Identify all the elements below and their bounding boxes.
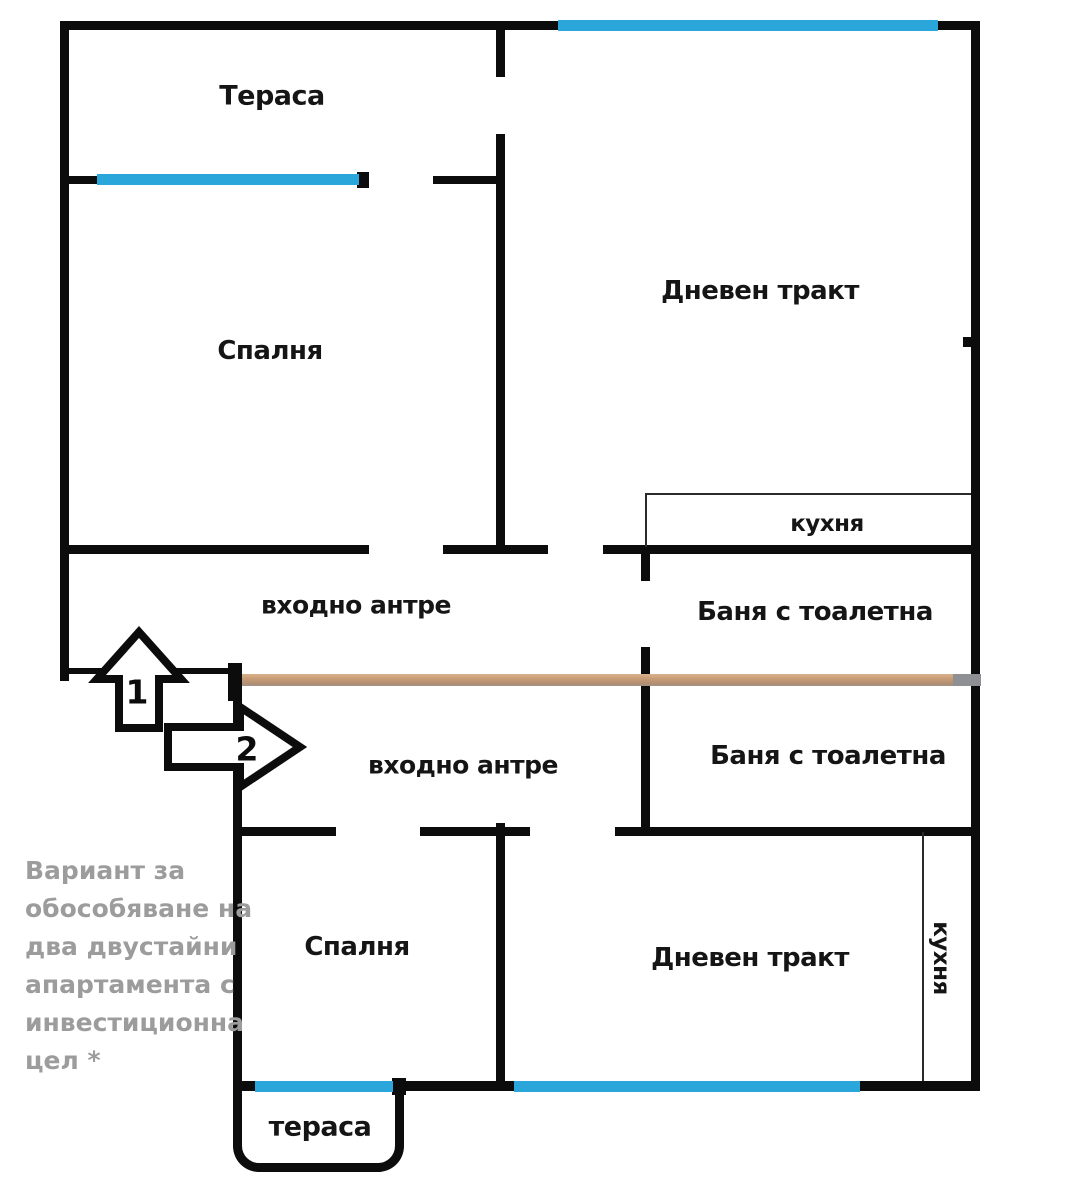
wall-bottom-right: [858, 1081, 980, 1091]
entrance-2-number: 2: [236, 730, 259, 769]
line-kitchen1-top: [645, 493, 971, 495]
room-label-kitchen2: кухня: [928, 921, 954, 995]
wall-bedroom2-top-mid: [420, 827, 530, 836]
annotation-line: два двустайни: [25, 928, 252, 966]
annotation-line: цел *: [25, 1042, 252, 1080]
entrance-1-number: 1: [126, 673, 149, 712]
wall-bedroom2-living2: [496, 823, 505, 1090]
room-label-bedroom2: Спалня: [304, 932, 409, 962]
wall-hall1-top-right: [603, 545, 980, 554]
room-label-bath2: Баня с тоалетна: [710, 741, 946, 771]
wall-bottom-mid: [404, 1081, 516, 1091]
wall-outer-left: [60, 21, 69, 681]
wall-terrace-divider-left: [60, 176, 98, 184]
wall-outer-right: [971, 21, 980, 1090]
annotation-line: Вариант за: [25, 852, 252, 890]
line-kitchen2-divider: [922, 832, 924, 1081]
room-label-hall1: входно антре: [261, 591, 451, 620]
room-label-bath1: Баня с тоалетна: [697, 597, 933, 627]
apartment-divider-line: [238, 674, 953, 686]
wall-bath1-left-upper: [641, 545, 650, 581]
floor-plan: 1 2 Тераса Спалня Дневен тракт кухня вхо…: [0, 0, 1075, 1200]
window-bedroom2: [255, 1081, 393, 1092]
wall-hall1-top-mid: [443, 545, 548, 554]
wall-right-nub: [963, 337, 971, 347]
window-terrace1: [97, 174, 359, 185]
wall-bath2-left: [641, 686, 650, 832]
annotation-text: Вариант за обособяване на два двустайни …: [25, 852, 252, 1080]
window-living1-top: [558, 20, 938, 31]
annotation-line: обособяване на: [25, 890, 252, 928]
annotation-line: апартамента с: [25, 966, 252, 1004]
room-label-living2: Дневен тракт: [651, 943, 849, 973]
wall-bedroom2-top-left: [233, 827, 336, 836]
wall-bedroom1-living1-upper: [496, 21, 505, 77]
room-label-terrace2: тераса: [269, 1112, 372, 1143]
apartment-divider-end-cap: [953, 674, 981, 686]
room-label-bedroom1: Спалня: [217, 336, 322, 366]
room-label-terrace1: Тераса: [219, 81, 325, 112]
room-label-hall2: входно антре: [368, 751, 558, 780]
wall-terrace-divider-right: [433, 176, 505, 184]
annotation-line: инвестиционна: [25, 1004, 252, 1042]
room-label-living1: Дневен тракт: [661, 276, 859, 306]
wall-living2-top: [615, 827, 980, 836]
window-living2: [514, 1081, 860, 1092]
wall-bedroom1-living1-lower: [496, 134, 505, 553]
room-label-kitchen1: кухня: [790, 511, 864, 537]
wall-bedroom1-bottom: [60, 545, 369, 554]
line-kitchen1-left: [645, 493, 647, 547]
